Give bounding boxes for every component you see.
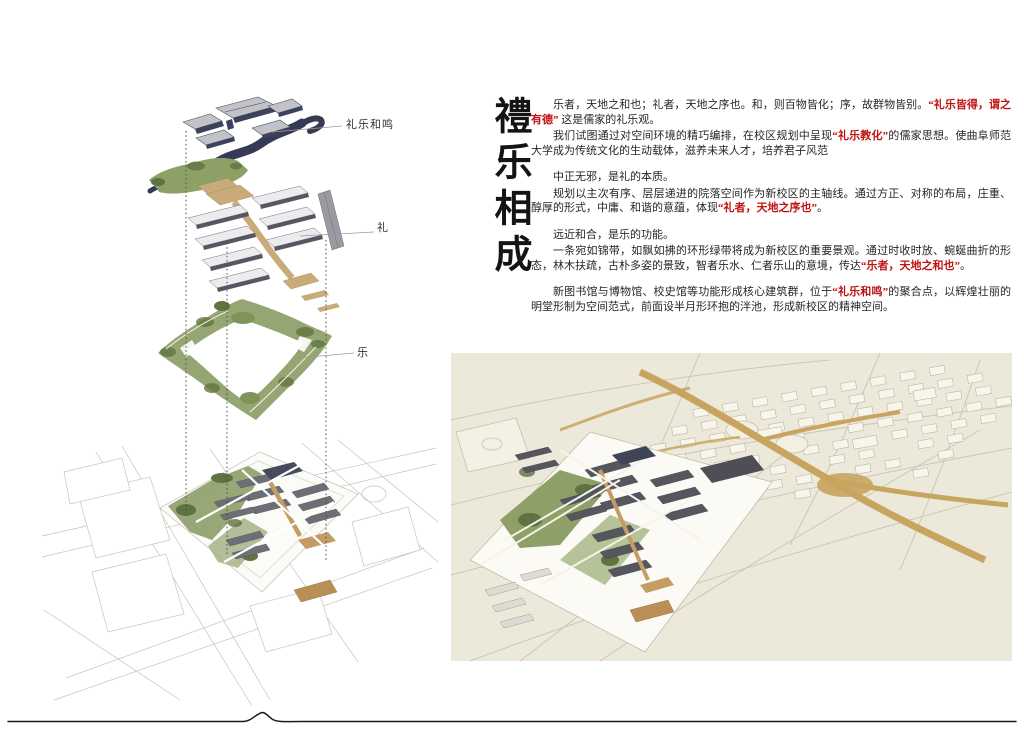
diagram-label-li: 礼 (377, 219, 389, 235)
paragraph-yue-function: 远近和合，是乐的功能。 (531, 228, 1011, 243)
highlight-quote: “礼者，天地之序也” (718, 202, 817, 214)
diagram-label-yue: 乐 (357, 344, 369, 360)
text-segment: 。 (960, 260, 971, 272)
presentation-board: 禮乐相成 礼乐和鸣 礼 乐 乐者，天地之和也；礼者，天地之序也。和，则百物皆化；… (0, 0, 1024, 749)
body-text: 乐者，天地之和也；礼者，天地之序也。和，则百物皆化；序，故群物皆别。“礼乐皆得，… (531, 96, 1011, 314)
paragraph-liyue-quote: 乐者，天地之和也；礼者，天地之序也。和，则百物皆化；序，故群物皆别。“礼乐皆得，… (531, 98, 1011, 127)
page-title: 禮乐相成 (490, 96, 528, 280)
highlight-quote: “礼乐教化” (832, 130, 888, 142)
layer-site-plan (42, 440, 438, 706)
paragraph-intent: 我们试图通过对空间环境的精巧编排，在校区规划中呈现“礼乐教化”的儒家思想。使曲阜… (531, 129, 1011, 158)
footer-ink-line (8, 712, 1016, 721)
paragraph-li-planning: 规划以主次有序、层层递进的院落空间作为新校区的主轴线。通过方正、对称的布局，庄重… (531, 187, 1011, 216)
text-segment: 中正无邪，是礼的本质。 (553, 171, 674, 183)
highlight-quote: “礼乐和鸣” (832, 286, 888, 298)
paragraph-core-buildings: 新图书馆与博物馆、校史馆等功能形成核心建筑群，位于“礼乐和鸣”的聚合点，以辉煌壮… (531, 285, 1011, 314)
exploded-axon-diagram (42, 97, 438, 706)
text-segment: 乐者，天地之和也；礼者，天地之序也。和，则百物皆化；序，故群物皆别。 (553, 99, 928, 111)
text-segment: 新图书馆与博物馆、校史馆等功能形成核心建筑群，位于 (553, 286, 832, 298)
highlight-quote: “乐者，天地之和也” (861, 260, 960, 272)
diagram-label-heming: 礼乐和鸣 (346, 116, 394, 132)
paragraph-yue-greenbelt: 一条宛如锦带，如飘如拂的环形绿带将成为新校区的重要景观。通过时收时放、蜿蜒曲折的… (531, 244, 1011, 273)
paragraph-li-essence: 中正无邪，是礼的本质。 (531, 170, 1011, 185)
text-segment: 。 (817, 202, 828, 214)
text-segment: 这是儒家的礼乐观。 (559, 114, 661, 126)
layer-yue-green-ring (158, 299, 332, 420)
text-segment: 远近和合，是乐的功能。 (553, 229, 674, 241)
masterplan-render (451, 353, 1021, 661)
text-segment: 我们试图通过对空间环境的精巧编排，在校区规划中呈现 (553, 130, 832, 142)
